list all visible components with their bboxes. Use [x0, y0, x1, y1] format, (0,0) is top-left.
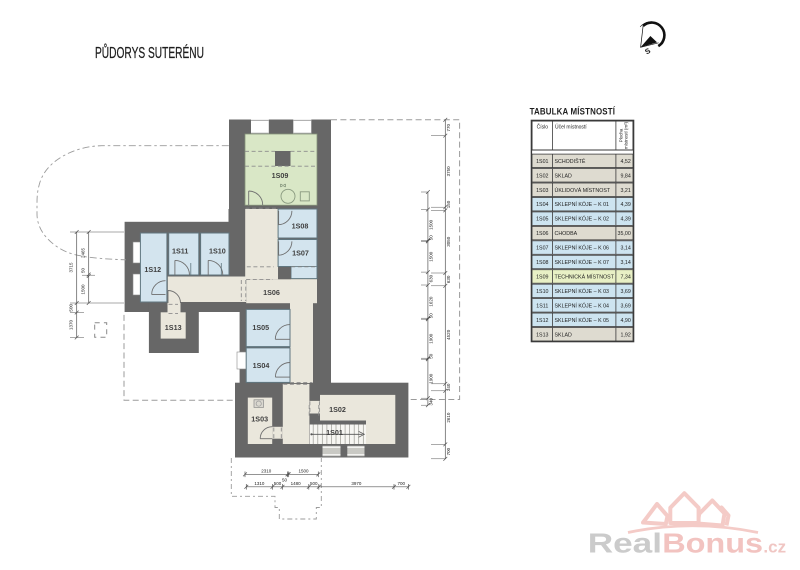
svg-text:4520: 4520	[446, 329, 451, 340]
svg-text:1S12: 1S12	[536, 318, 548, 324]
svg-text:1500: 1500	[298, 468, 309, 473]
svg-text:3,69: 3,69	[620, 303, 630, 309]
svg-text:1500: 1500	[428, 251, 433, 262]
svg-text:1S10: 1S10	[209, 247, 226, 256]
svg-text:1,92: 1,92	[620, 332, 630, 338]
svg-text:2610: 2610	[446, 412, 451, 423]
svg-text:4,90: 4,90	[620, 318, 630, 324]
svg-text:SKLEPNÍ KÓJE – K 02: SKLEPNÍ KÓJE – K 02	[555, 216, 610, 223]
svg-text:3970: 3970	[351, 481, 362, 486]
svg-text:700: 700	[397, 481, 405, 486]
svg-text:700: 700	[446, 447, 451, 455]
svg-text:50: 50	[81, 268, 86, 274]
svg-text:4,39: 4,39	[620, 202, 630, 208]
svg-text:1S03: 1S03	[251, 415, 268, 424]
svg-text:1S12: 1S12	[144, 265, 161, 274]
svg-text:500: 500	[69, 304, 74, 312]
svg-text:3715: 3715	[69, 262, 74, 273]
svg-text:PŮDORYS SUTERÉNU: PŮDORYS SUTERÉNU	[95, 44, 204, 62]
svg-text:1S11: 1S11	[172, 247, 188, 256]
svg-text:500: 500	[274, 481, 282, 486]
svg-text:50: 50	[282, 478, 288, 483]
svg-text:1S08: 1S08	[536, 260, 548, 266]
svg-text:630: 630	[446, 275, 451, 283]
svg-text:1S01: 1S01	[536, 159, 548, 165]
svg-text:1S04: 1S04	[536, 202, 548, 208]
svg-text:340: 340	[428, 397, 433, 405]
svg-text:1S07: 1S07	[536, 246, 548, 252]
svg-text:770: 770	[446, 123, 451, 131]
svg-text:2465: 2465	[81, 247, 86, 258]
svg-text:1310: 1310	[254, 481, 265, 486]
svg-text:3,21: 3,21	[620, 188, 630, 194]
svg-text:630: 630	[428, 274, 433, 282]
svg-text:1500: 1500	[81, 284, 86, 295]
svg-text:SKLEPNÍ KÓJE – K 06: SKLEPNÍ KÓJE – K 06	[555, 245, 610, 252]
svg-text:místností (m²): místností (m²)	[623, 121, 628, 149]
svg-text:SKLAD: SKLAD	[555, 173, 573, 179]
svg-text:500: 500	[310, 481, 318, 486]
svg-text:Bonus: Bonus	[662, 529, 763, 559]
svg-text:1S06: 1S06	[536, 231, 548, 237]
svg-text:SKLAD: SKLAD	[555, 332, 573, 338]
svg-text:Real: Real	[588, 527, 662, 558]
svg-text:3050: 3050	[446, 236, 451, 247]
svg-text:1480: 1480	[291, 481, 302, 486]
svg-text:3750: 3750	[446, 166, 451, 177]
svg-text:CHODBA: CHODBA	[555, 231, 578, 237]
svg-text:SKLEPNÍ KÓJE – K 04: SKLEPNÍ KÓJE – K 04	[555, 302, 610, 309]
svg-text:7,34: 7,34	[620, 274, 630, 280]
svg-text:SKLEPNÍ KÓJE – K 07: SKLEPNÍ KÓJE – K 07	[555, 259, 610, 266]
svg-text:150: 150	[446, 200, 451, 208]
svg-text:1S04: 1S04	[253, 361, 270, 370]
svg-text:1370: 1370	[69, 319, 74, 330]
svg-text:1500: 1500	[428, 219, 433, 230]
svg-text:1S13: 1S13	[536, 332, 548, 338]
svg-text:1S02: 1S02	[536, 173, 548, 179]
svg-text:1S13: 1S13	[165, 323, 182, 332]
svg-text:1S05: 1S05	[536, 217, 548, 223]
svg-text:9,84: 9,84	[620, 173, 630, 179]
svg-text:50: 50	[428, 235, 433, 241]
svg-text:TECHNICKÁ MÍSTNOST: TECHNICKÁ MÍSTNOST	[555, 273, 615, 280]
svg-text:1620: 1620	[428, 296, 433, 307]
svg-text:3,14: 3,14	[620, 260, 630, 266]
svg-text:1S08: 1S08	[292, 222, 309, 231]
svg-text:1S05: 1S05	[252, 323, 269, 332]
svg-text:1S03: 1S03	[536, 188, 548, 194]
svg-text:SKLEPNÍ KÓJE – K 01: SKLEPNÍ KÓJE – K 01	[555, 201, 610, 208]
svg-text:SKLEPNÍ KÓJE – K 03: SKLEPNÍ KÓJE – K 03	[555, 288, 610, 295]
svg-text:1S09: 1S09	[536, 274, 548, 280]
svg-text:1S07: 1S07	[292, 249, 309, 258]
svg-text:3,69: 3,69	[620, 289, 630, 295]
svg-text:1S02: 1S02	[329, 405, 346, 414]
svg-text:1900: 1900	[428, 333, 433, 344]
svg-text:1S11: 1S11	[536, 303, 548, 309]
svg-text:2310: 2310	[261, 468, 272, 473]
svg-text:SCHODIŠTĚ: SCHODIŠTĚ	[555, 157, 586, 165]
svg-text:1S09: 1S09	[272, 171, 289, 180]
svg-text:1S01: 1S01	[326, 428, 343, 437]
svg-text:1S06: 1S06	[263, 288, 280, 297]
svg-text:1900: 1900	[428, 373, 433, 384]
svg-text:50: 50	[428, 353, 433, 359]
svg-text:.cz: .cz	[763, 538, 786, 557]
svg-text:340: 340	[446, 383, 451, 391]
svg-text:Číslo: Číslo	[537, 124, 549, 131]
svg-text:Účel místností: Účel místností	[555, 124, 587, 131]
svg-text:35,00: 35,00	[618, 231, 631, 237]
svg-text:ÚKLIDOVÁ MÍSTNOST: ÚKLIDOVÁ MÍSTNOST	[555, 187, 611, 194]
svg-text:1S10: 1S10	[536, 289, 548, 295]
svg-text:3,14: 3,14	[620, 246, 630, 252]
svg-text:TABULKA MÍSTNOSTÍ: TABULKA MÍSTNOSTÍ	[530, 105, 616, 117]
svg-text:50: 50	[428, 313, 433, 319]
svg-text:4,39: 4,39	[620, 217, 630, 223]
svg-text:4,52: 4,52	[620, 159, 630, 165]
svg-text:SKLEPNÍ KÓJE – K 05: SKLEPNÍ KÓJE – K 05	[555, 317, 610, 324]
